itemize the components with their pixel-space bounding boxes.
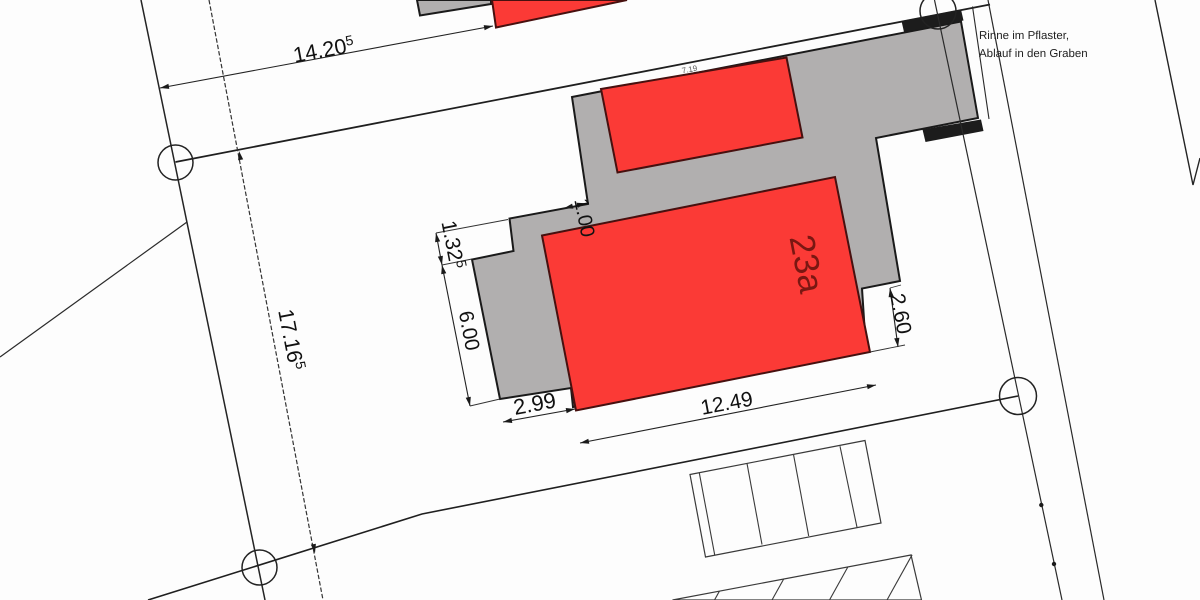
svg-text:Rinne im Pflaster,: Rinne im Pflaster, — [979, 30, 1069, 42]
svg-text:Ablauf in den Graben: Ablauf in den Graben — [979, 48, 1088, 60]
